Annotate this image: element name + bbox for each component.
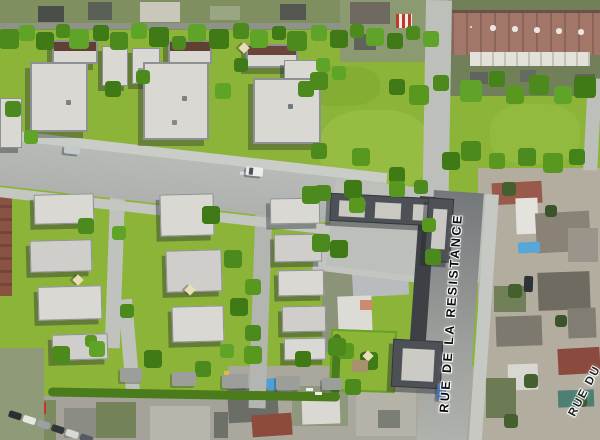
tree-cluster-lawn — [0, 56, 2, 58]
apartment-building-wing — [168, 40, 212, 64]
garden-patio — [120, 368, 142, 382]
garden-patch — [568, 228, 598, 262]
garden-patio — [322, 378, 342, 390]
conservatory-roofs — [470, 52, 590, 66]
shed-roof — [38, 6, 64, 22]
shed-roof — [88, 2, 112, 20]
swimming-pool — [518, 241, 541, 253]
house-roof — [567, 308, 596, 339]
brown-roof-strip — [54, 42, 96, 51]
lawn-highlight — [490, 104, 580, 164]
garden-patio — [276, 376, 300, 390]
white-lounger — [306, 388, 313, 391]
shed-roof — [280, 4, 306, 20]
brown-roof-strip — [248, 46, 296, 55]
car-windshield — [249, 167, 254, 174]
house-roof — [495, 315, 542, 347]
car-on-road — [246, 166, 264, 177]
car-on-road — [64, 145, 81, 155]
garden-patio — [172, 372, 196, 386]
garden-patio — [222, 374, 248, 388]
garden-patch — [486, 378, 516, 418]
yellow-furniture — [224, 371, 229, 375]
dormer-windows — [470, 26, 472, 28]
apartment-building — [102, 46, 128, 86]
apartment-building — [30, 62, 88, 132]
roof-inset — [431, 209, 448, 250]
light-patch — [150, 406, 210, 440]
rowhouse-roof — [452, 10, 600, 55]
tree-cluster-courtyard — [30, 190, 32, 192]
shed-roof — [354, 34, 376, 50]
street-front-building — [391, 339, 443, 390]
tree-cluster-park — [300, 64, 302, 66]
tree-cluster-street — [310, 180, 312, 182]
row-house-block — [159, 193, 214, 236]
row-house-block — [165, 249, 222, 292]
row-house-block — [34, 193, 95, 225]
site-plan-image: RUE DE LA RESISTANCE RUE DU — [0, 0, 600, 440]
apartment-building — [253, 78, 321, 144]
parked-car — [524, 276, 534, 292]
row-house-block — [270, 198, 320, 225]
tree-line-top — [0, 24, 2, 26]
house-roof — [537, 271, 590, 311]
garden-patch — [96, 402, 136, 438]
apartment-building — [143, 62, 209, 140]
garden-patch — [494, 286, 526, 312]
house-roof-red — [251, 413, 292, 438]
kept-house-roof-salmon — [360, 300, 372, 310]
row-house-block — [38, 285, 103, 321]
row-house-block — [278, 270, 324, 297]
wooden-patio — [352, 360, 368, 373]
row-house-block — [172, 305, 225, 342]
garden-patch — [210, 6, 240, 20]
parasol — [72, 274, 83, 285]
house-roof — [350, 2, 390, 24]
tree-cluster-gardens — [40, 330, 42, 332]
shed-roof — [378, 410, 400, 428]
satellite-rowhouses-topright — [448, 0, 600, 96]
roof-inset — [339, 200, 366, 217]
roof-inset — [401, 348, 435, 382]
shed-roof — [470, 72, 488, 84]
existing-brick-building — [0, 196, 12, 296]
row-house-block — [52, 333, 109, 360]
row-house-block — [284, 338, 326, 361]
red-awning — [396, 14, 412, 28]
row-house-block — [30, 239, 93, 273]
row-house-block — [274, 234, 322, 263]
brown-roof-strip — [170, 42, 210, 51]
apartment-building-wing — [52, 40, 98, 64]
rooftop-units — [66, 100, 71, 105]
apartment-building — [0, 98, 22, 148]
row-house-block — [282, 306, 326, 333]
light-patch — [140, 2, 180, 22]
roof-inset — [375, 202, 402, 219]
white-lounger — [315, 392, 322, 395]
park-path-vertical — [422, 0, 452, 210]
tree-cluster-satellite — [490, 170, 492, 172]
shed-roof — [520, 70, 536, 82]
